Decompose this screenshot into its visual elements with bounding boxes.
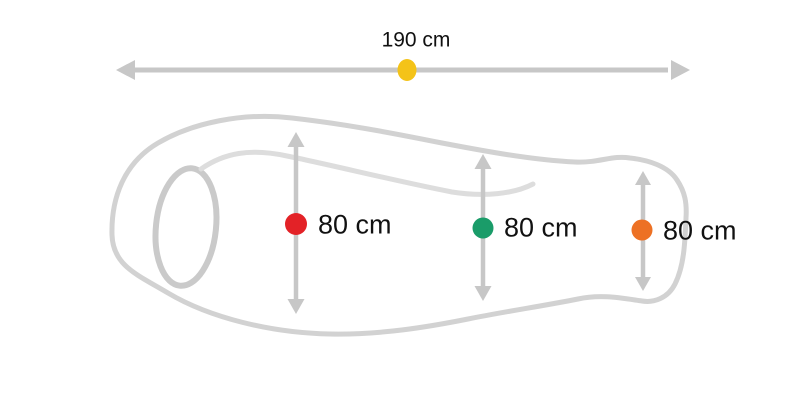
diagram-graphics (0, 0, 800, 400)
width-arrowhead-right-bottom (635, 277, 651, 291)
width-marker-dot-right (632, 220, 653, 241)
length-arrowhead-right (671, 60, 690, 80)
width-dimension-label-left: 80 cm (318, 212, 392, 239)
length-dimension-label: 190 cm (382, 30, 451, 51)
width-marker-dot-middle (473, 218, 494, 239)
width-arrowhead-middle-top (475, 154, 492, 169)
width-arrowhead-left-top (288, 132, 305, 147)
width-dimension-label-middle: 80 cm (504, 215, 578, 242)
sleeping-bag-dimensions-diagram: 190 cm 80 cm 80 cm 80 cm (0, 0, 800, 400)
width-arrowhead-right-top (635, 171, 651, 185)
width-arrow-middle (473, 154, 494, 301)
width-arrowhead-left-bottom (288, 299, 305, 314)
width-dimension-label-right: 80 cm (663, 218, 737, 245)
width-arrow-right (632, 171, 653, 291)
width-marker-dot-left (285, 213, 307, 235)
length-arrow (116, 59, 690, 81)
length-marker-dot (398, 59, 417, 81)
hood-opening (150, 165, 222, 289)
width-arrowhead-middle-bottom (475, 286, 492, 301)
length-arrowhead-left (116, 60, 135, 80)
sleeping-bag-outline (112, 116, 686, 334)
